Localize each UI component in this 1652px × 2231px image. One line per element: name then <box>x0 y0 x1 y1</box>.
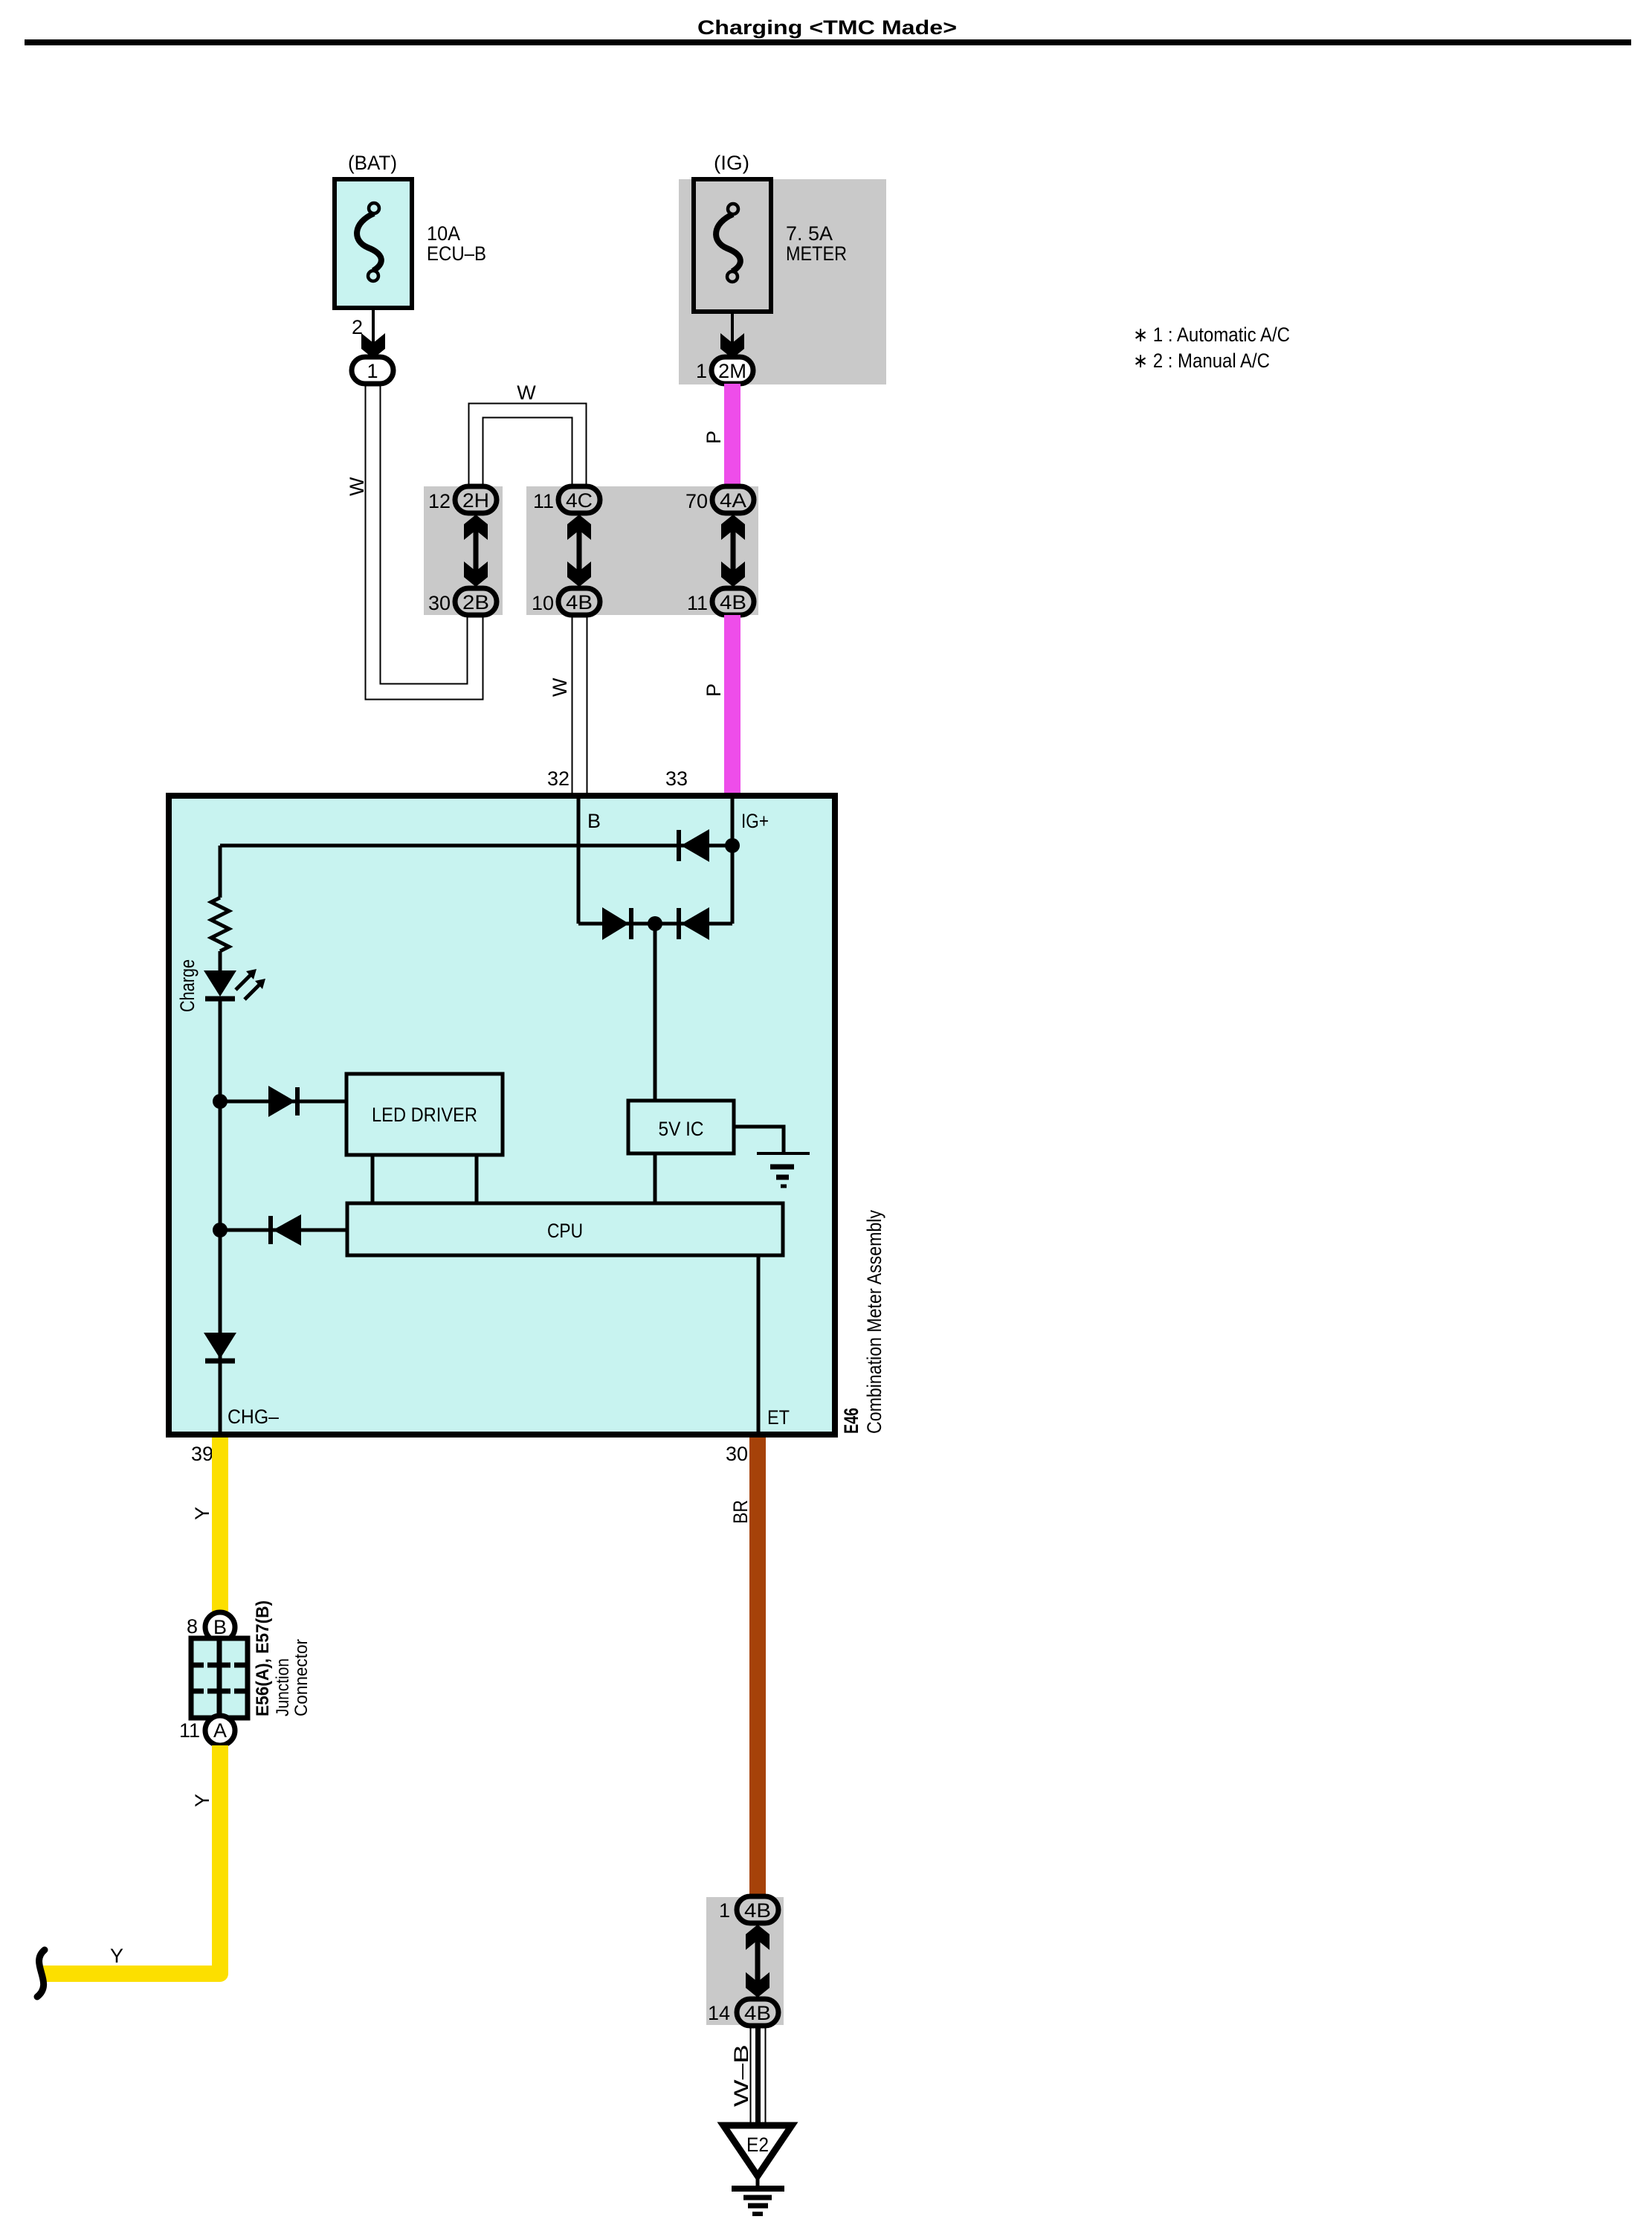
svg-text:1: 1 <box>696 360 707 382</box>
svg-text:39: 39 <box>191 1443 213 1465</box>
svg-text:B: B <box>213 1616 227 1638</box>
svg-text:14: 14 <box>708 2002 730 2024</box>
svg-text:8: 8 <box>187 1615 198 1638</box>
svg-text:4C: 4C <box>566 489 593 512</box>
svg-text:30: 30 <box>428 592 451 614</box>
svg-text:11: 11 <box>533 490 554 512</box>
svg-text:1: 1 <box>719 1899 730 1922</box>
svg-text:ECU–B: ECU–B <box>427 242 486 265</box>
svg-text:Y: Y <box>110 1945 123 1967</box>
svg-text:10A: 10A <box>427 222 460 245</box>
svg-text:Combination Meter Assembly: Combination Meter Assembly <box>863 1210 885 1434</box>
svg-text:W: W <box>346 477 368 496</box>
svg-text:CPU: CPU <box>547 1220 583 1242</box>
svg-text:2H: 2H <box>462 489 489 512</box>
svg-text:(BAT): (BAT) <box>348 152 397 174</box>
svg-text:LED DRIVER: LED DRIVER <box>372 1104 477 1126</box>
svg-text:30: 30 <box>726 1443 748 1465</box>
svg-text:ET: ET <box>767 1406 790 1429</box>
svg-text:(IG): (IG) <box>714 152 749 174</box>
svg-text:IG+: IG+ <box>741 810 769 832</box>
svg-text:7. 5A: 7. 5A <box>786 222 833 245</box>
svg-text:P: P <box>703 683 725 697</box>
svg-text:W: W <box>517 382 536 404</box>
svg-text:E46: E46 <box>840 1408 862 1434</box>
svg-text:1: 1 <box>367 360 378 382</box>
svg-text:CHG–: CHG– <box>228 1406 279 1428</box>
svg-text:11: 11 <box>687 592 708 614</box>
svg-text:∗ 1 : Automatic A/C: ∗ 1 : Automatic A/C <box>1133 323 1290 346</box>
svg-text:A: A <box>213 1719 227 1742</box>
svg-text:Connector: Connector <box>291 1639 312 1716</box>
svg-text:11: 11 <box>179 1719 200 1742</box>
svg-text:∗ 2 : Manual A/C: ∗ 2 : Manual A/C <box>1133 350 1270 372</box>
svg-text:12: 12 <box>428 490 451 512</box>
svg-text:Charging <TMC Made>: Charging <TMC Made> <box>697 16 957 39</box>
svg-text:70: 70 <box>685 490 708 512</box>
svg-text:Y: Y <box>191 1507 213 1520</box>
svg-text:4A: 4A <box>720 489 746 512</box>
svg-text:10: 10 <box>532 592 554 614</box>
svg-text:4B: 4B <box>720 591 746 614</box>
svg-text:Y: Y <box>191 1794 213 1807</box>
svg-text:BR: BR <box>729 1500 752 1524</box>
svg-text:B: B <box>587 810 601 832</box>
svg-text:2B: 2B <box>462 591 489 614</box>
svg-text:Charge: Charge <box>176 959 199 1012</box>
svg-text:2: 2 <box>352 316 363 338</box>
svg-text:W–B: W–B <box>730 2044 752 2107</box>
svg-text:33: 33 <box>665 767 688 790</box>
svg-text:E2: E2 <box>746 2134 769 2156</box>
svg-text:4B: 4B <box>744 1899 771 1922</box>
svg-text:4B: 4B <box>566 591 593 614</box>
svg-text:2M: 2M <box>718 360 746 382</box>
svg-text:E56(A), E57(B): E56(A), E57(B) <box>253 1600 273 1716</box>
svg-text:METER: METER <box>786 242 847 265</box>
svg-text:P: P <box>703 431 725 444</box>
svg-text:5V IC: 5V IC <box>659 1118 704 1140</box>
svg-text:Junction: Junction <box>273 1658 293 1716</box>
svg-text:32: 32 <box>547 767 570 790</box>
svg-text:4B: 4B <box>744 2002 771 2024</box>
svg-text:W: W <box>549 677 571 697</box>
